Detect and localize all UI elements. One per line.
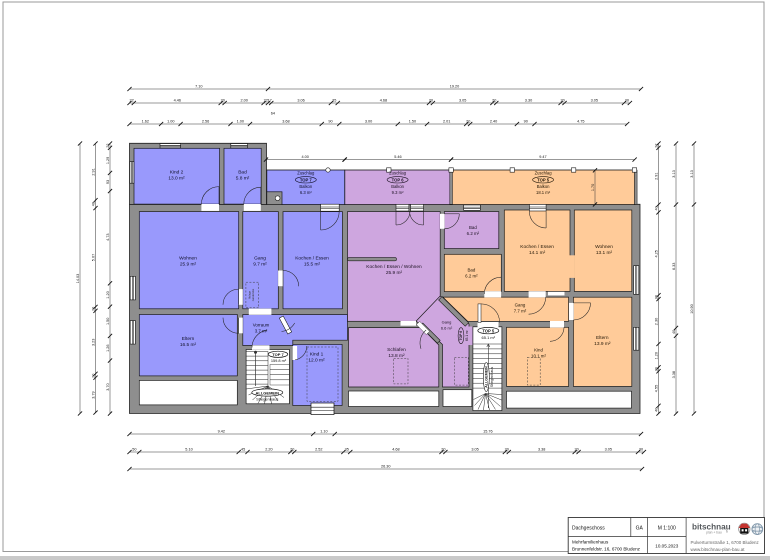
svg-text:20: 20: [441, 448, 445, 452]
svg-text:30: 30: [639, 448, 643, 452]
svg-text:3.06: 3.06: [297, 99, 304, 103]
svg-text:14.03: 14.03: [76, 274, 80, 284]
svg-text:1.26: 1.26: [106, 345, 110, 352]
svg-text:2.40: 2.40: [490, 120, 497, 124]
svg-text:Kochen / Essen / Wohnen: Kochen / Essen / Wohnen: [366, 264, 422, 270]
svg-text:Bad: Bad: [238, 170, 247, 176]
svg-text:4.00: 4.00: [302, 155, 309, 159]
svg-text:3.13: 3.13: [690, 170, 694, 177]
svg-text:TOP 6: TOP 6: [392, 178, 405, 183]
svg-text:Kind 2: Kind 2: [170, 170, 184, 176]
svg-text:ALLGEMEIN: ALLGEMEIN: [256, 390, 280, 395]
svg-text:4.68: 4.68: [392, 448, 399, 452]
svg-text:1.70: 1.70: [591, 184, 595, 191]
svg-text:4.73: 4.73: [106, 234, 110, 241]
svg-text:25.9 m²: 25.9 m²: [180, 262, 197, 268]
svg-text:2.20: 2.20: [265, 448, 272, 452]
svg-text:M 1:100: M 1:100: [658, 526, 676, 532]
svg-text:40: 40: [654, 206, 658, 210]
svg-text:40: 40: [672, 330, 676, 334]
svg-text:1.50: 1.50: [106, 318, 110, 325]
svg-text:13.0 m²: 13.0 m²: [168, 176, 185, 182]
svg-text:Kochen / Essen: Kochen / Essen: [520, 244, 554, 250]
svg-text:159.8 m²: 159.8 m²: [271, 358, 287, 363]
svg-text:12.0 m²: 12.0 m²: [308, 358, 325, 364]
svg-text:Wohnen: Wohnen: [595, 244, 613, 250]
svg-text:22: 22: [654, 143, 658, 147]
svg-text:Balkon: Balkon: [537, 184, 550, 189]
svg-text:3.05: 3.05: [591, 99, 598, 103]
svg-text:65.1 m²: 65.1 m²: [465, 330, 469, 341]
svg-text:Gang: Gang: [442, 320, 452, 325]
svg-text:3.05: 3.05: [605, 448, 612, 452]
svg-text:Garderobe: Garderobe: [251, 288, 255, 301]
svg-text:Eltern: Eltern: [596, 335, 609, 341]
svg-text:1.29: 1.29: [106, 157, 110, 164]
svg-text:10.90: 10.90: [690, 304, 694, 314]
svg-text:3.70: 3.70: [106, 383, 110, 390]
svg-text:20: 20: [91, 374, 95, 378]
svg-text:Stiegenhaus: Stiegenhaus: [490, 367, 494, 388]
svg-text:6.2 m²: 6.2 m²: [467, 231, 480, 236]
svg-text:Kochen / Essen: Kochen / Essen: [295, 256, 329, 262]
svg-text:3.05: 3.05: [459, 99, 466, 103]
svg-text:35: 35: [345, 448, 349, 452]
svg-text:16.5 m²: 16.5 m²: [180, 342, 197, 348]
svg-text:10.1 m²: 10.1 m²: [531, 354, 546, 359]
svg-text:Zuschlag: Zuschlag: [535, 171, 553, 176]
svg-text:3.7 m²: 3.7 m²: [255, 329, 268, 334]
svg-text:25.9 m²: 25.9 m²: [386, 270, 403, 276]
svg-text:Mehrfamilienhaus: Mehrfamilienhaus: [572, 540, 609, 545]
svg-text:20: 20: [221, 99, 225, 103]
svg-text:20: 20: [574, 448, 578, 452]
svg-text:9.7 m²: 9.7 m²: [253, 262, 267, 268]
svg-text:Zuschlag: Zuschlag: [389, 171, 407, 176]
svg-text:1.00: 1.00: [167, 120, 174, 124]
svg-text:Zuschlag: Zuschlag: [297, 171, 315, 176]
svg-text:20: 20: [91, 307, 95, 311]
svg-text:2.30: 2.30: [654, 318, 658, 325]
svg-text:5.46: 5.46: [394, 155, 401, 159]
svg-text:2.91: 2.91: [654, 173, 658, 180]
svg-text:Kind: Kind: [534, 348, 543, 353]
svg-text:3.38: 3.38: [538, 448, 545, 452]
svg-text:1.50: 1.50: [409, 120, 416, 124]
svg-text:13.8 m²: 13.8 m²: [388, 353, 405, 359]
svg-text:6.2 m²: 6.2 m²: [465, 274, 478, 279]
svg-text:3.13: 3.13: [672, 170, 676, 177]
svg-text:1.10: 1.10: [320, 430, 327, 434]
svg-text:4.68: 4.68: [380, 99, 387, 103]
svg-text:Balkon: Balkon: [391, 184, 404, 189]
svg-text:18.1 m²: 18.1 m²: [536, 190, 551, 195]
svg-text:20: 20: [654, 367, 658, 371]
svg-text:Schlafen: Schlafen: [387, 347, 406, 353]
svg-text:20: 20: [466, 120, 470, 124]
svg-text:3.23: 3.23: [91, 339, 95, 346]
svg-text:2.91: 2.91: [91, 168, 95, 175]
svg-text:TOP 7: TOP 7: [272, 352, 284, 357]
svg-text:19.20: 19.20: [450, 85, 460, 89]
svg-text:2.00: 2.00: [241, 99, 248, 103]
svg-text:Brunnenfeldstr. 16, 6700 Blude: Brunnenfeldstr. 16, 6700 Bludenz: [572, 547, 641, 552]
svg-text:93: 93: [106, 180, 110, 184]
svg-text:4.25: 4.25: [654, 250, 658, 257]
svg-text:Kind 1: Kind 1: [310, 352, 324, 358]
svg-text:35: 35: [332, 99, 336, 103]
svg-text:20: 20: [560, 99, 564, 103]
svg-text:www.bitschnau-plan-bau.at: www.bitschnau-plan-bau.at: [691, 547, 746, 552]
svg-text:6.33: 6.33: [672, 263, 676, 270]
svg-text:65.1 m²: 65.1 m²: [482, 335, 496, 340]
svg-text:6.6 m²: 6.6 m²: [441, 326, 453, 331]
svg-text:20: 20: [505, 448, 509, 452]
svg-text:3.05: 3.05: [471, 448, 478, 452]
svg-text:Pulverturmstraße 1, 6700 Blude: Pulverturmstraße 1, 6700 Bludenz: [691, 540, 760, 545]
svg-text:45: 45: [241, 448, 245, 452]
svg-text:9.42: 9.42: [218, 430, 225, 434]
svg-text:3.30: 3.30: [525, 99, 532, 103]
svg-text:20: 20: [492, 99, 496, 103]
svg-text:Bad: Bad: [469, 225, 477, 230]
svg-text:3.38: 3.38: [672, 371, 676, 378]
svg-text:Eltern: Eltern: [182, 336, 195, 342]
svg-text:Gang: Gang: [254, 256, 266, 262]
svg-text:5.8 m²: 5.8 m²: [236, 176, 250, 182]
svg-text:14.1 m²: 14.1 m²: [529, 250, 546, 256]
svg-text:15.76: 15.76: [483, 430, 493, 434]
svg-text:4.46: 4.46: [174, 99, 181, 103]
svg-text:5.07: 5.07: [91, 254, 95, 261]
svg-text:TOP 6: TOP 6: [459, 331, 463, 341]
svg-text:13.9 m²: 13.9 m²: [594, 341, 611, 347]
svg-text:4.75: 4.75: [577, 120, 584, 124]
svg-text:4.55: 4.55: [654, 385, 658, 392]
svg-text:2.56: 2.56: [202, 120, 209, 124]
svg-text:64: 64: [271, 112, 275, 116]
svg-text:GA: GA: [636, 526, 644, 532]
svg-text:Vorraum: Vorraum: [253, 323, 270, 328]
svg-text:3.79: 3.79: [91, 391, 95, 398]
svg-text:TOP 5: TOP 5: [537, 178, 550, 183]
svg-text:9.3 m²: 9.3 m²: [392, 190, 404, 195]
svg-text:plan + bau: plan + bau: [706, 530, 722, 534]
svg-text:7.7 m²: 7.7 m²: [514, 309, 527, 314]
svg-text:Stiegenhaus: Stiegenhaus: [256, 397, 278, 402]
svg-text:1.62: 1.62: [142, 120, 149, 124]
svg-text:gmbh: gmbh: [725, 526, 728, 533]
svg-text:40: 40: [654, 408, 658, 412]
svg-text:90: 90: [524, 120, 528, 124]
svg-text:90: 90: [328, 120, 332, 124]
svg-text:2.52: 2.52: [315, 448, 322, 452]
svg-text:9.47: 9.47: [539, 155, 546, 159]
svg-text:13.1 m²: 13.1 m²: [596, 250, 613, 256]
svg-text:TOP 5: TOP 5: [482, 328, 495, 333]
svg-text:Wohnen: Wohnen: [179, 256, 197, 262]
svg-text:Dachgeschoss: Dachgeschoss: [572, 526, 605, 532]
svg-text:1.00: 1.00: [237, 120, 244, 124]
svg-text:30: 30: [625, 99, 629, 103]
svg-text:1.20: 1.20: [654, 352, 658, 359]
svg-text:Balkon: Balkon: [299, 184, 312, 189]
svg-text:17: 17: [267, 99, 271, 103]
svg-text:40: 40: [91, 202, 95, 206]
svg-text:3.68: 3.68: [282, 120, 289, 124]
svg-text:26.30: 26.30: [381, 465, 391, 469]
svg-text:6.3 m²: 6.3 m²: [300, 190, 312, 195]
svg-text:50: 50: [132, 448, 136, 452]
svg-text:20: 20: [429, 99, 433, 103]
svg-text:ALLGEMEIN: ALLGEMEIN: [485, 366, 489, 388]
svg-text:Bad: Bad: [467, 268, 475, 273]
svg-text:20: 20: [290, 448, 294, 452]
svg-text:TOP 7: TOP 7: [300, 178, 313, 183]
svg-text:3.00: 3.00: [365, 120, 372, 124]
svg-text:20: 20: [654, 295, 658, 299]
svg-text:10.05.2023: 10.05.2023: [655, 544, 678, 549]
svg-text:5.10: 5.10: [185, 448, 192, 452]
svg-text:22: 22: [106, 143, 110, 147]
svg-text:15.5 m²: 15.5 m²: [304, 262, 321, 268]
svg-text:Gang: Gang: [515, 303, 526, 308]
svg-text:22: 22: [129, 99, 133, 103]
svg-text:2.01: 2.01: [443, 120, 450, 124]
svg-text:7.10: 7.10: [195, 85, 202, 89]
svg-text:1.20: 1.20: [106, 291, 110, 298]
